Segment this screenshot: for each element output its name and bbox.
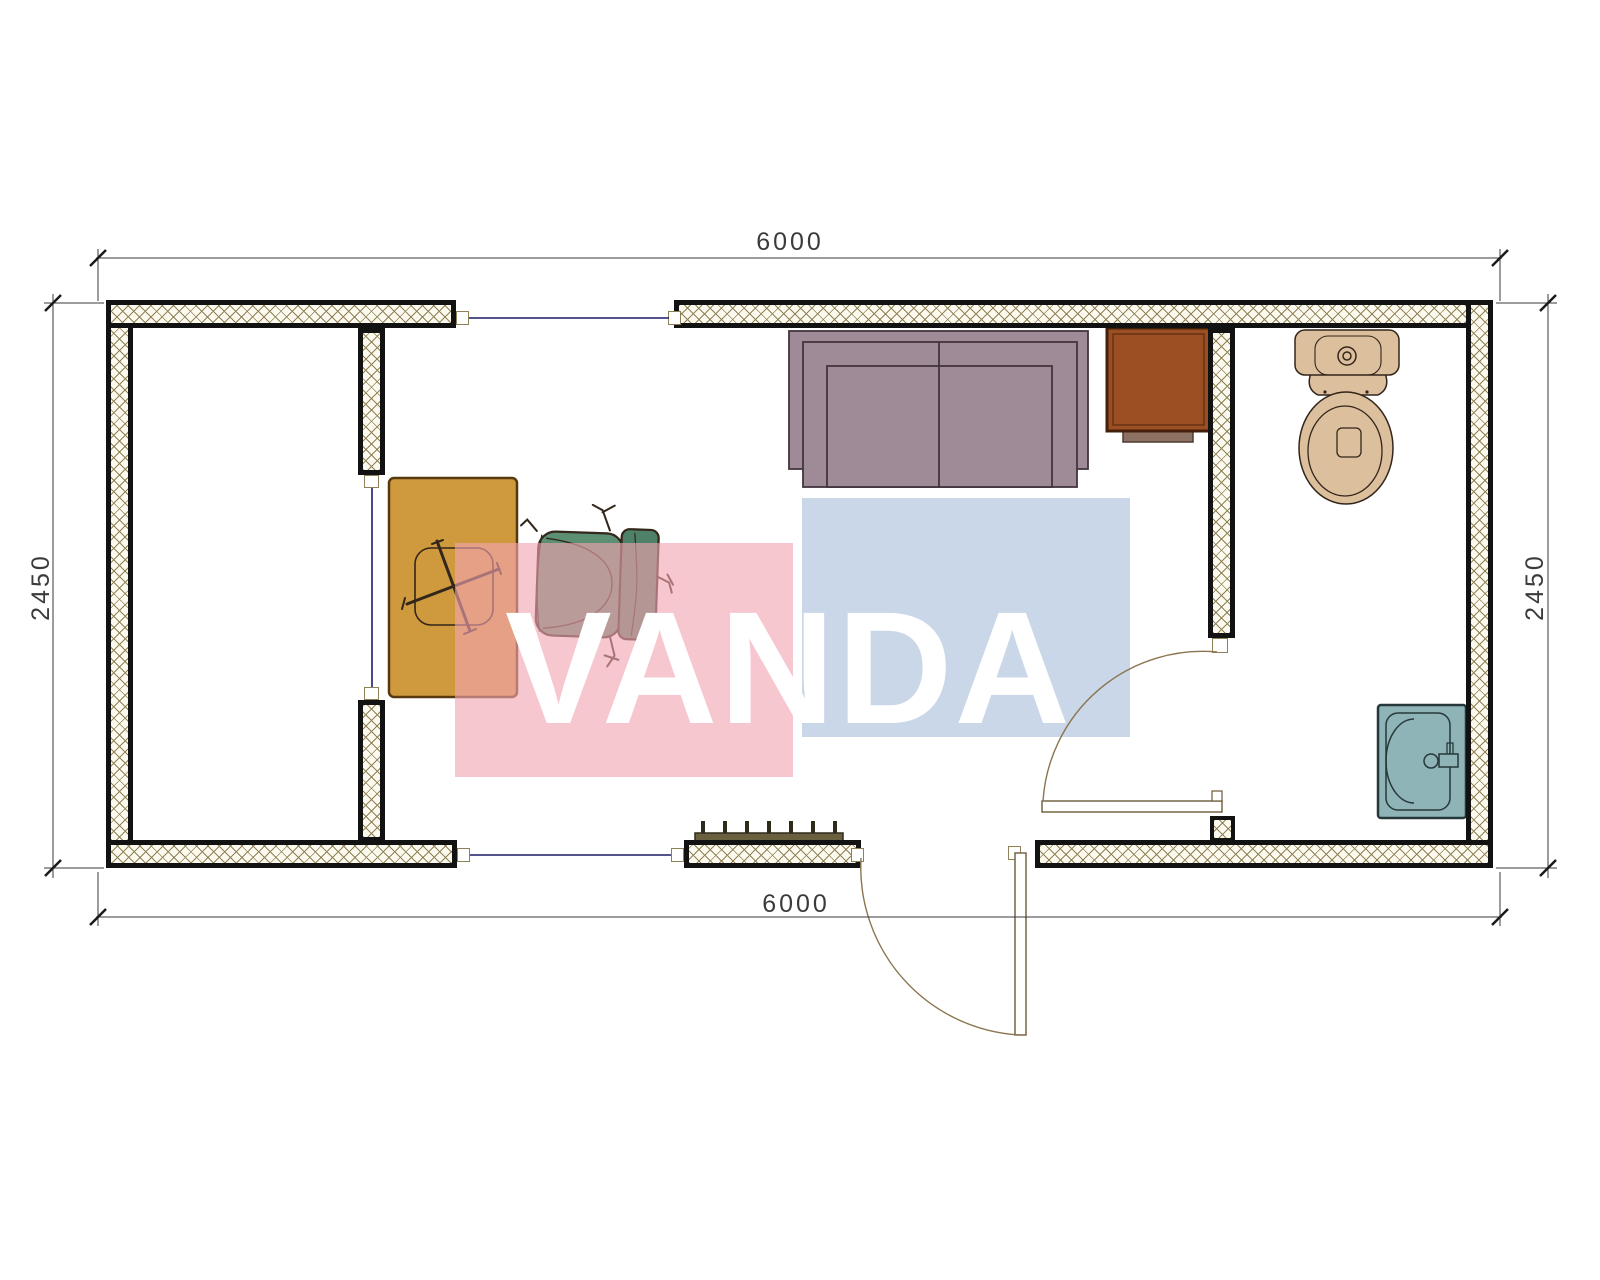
window-line (372, 318, 671, 855)
bathroom-door (1042, 651, 1222, 812)
annotation-layer (0, 0, 1600, 1280)
floor-plan-canvas: VANDA (0, 0, 1600, 1280)
dimension-top-label: 6000 (730, 229, 850, 255)
dimension-ticks (45, 250, 1556, 925)
dimension-left-label: 2450 (28, 527, 54, 647)
entry-door (861, 853, 1026, 1035)
dimension-lines (44, 249, 1557, 926)
dimension-right-label: 2450 (1522, 527, 1548, 647)
dimension-bottom-label: 6000 (736, 891, 856, 917)
